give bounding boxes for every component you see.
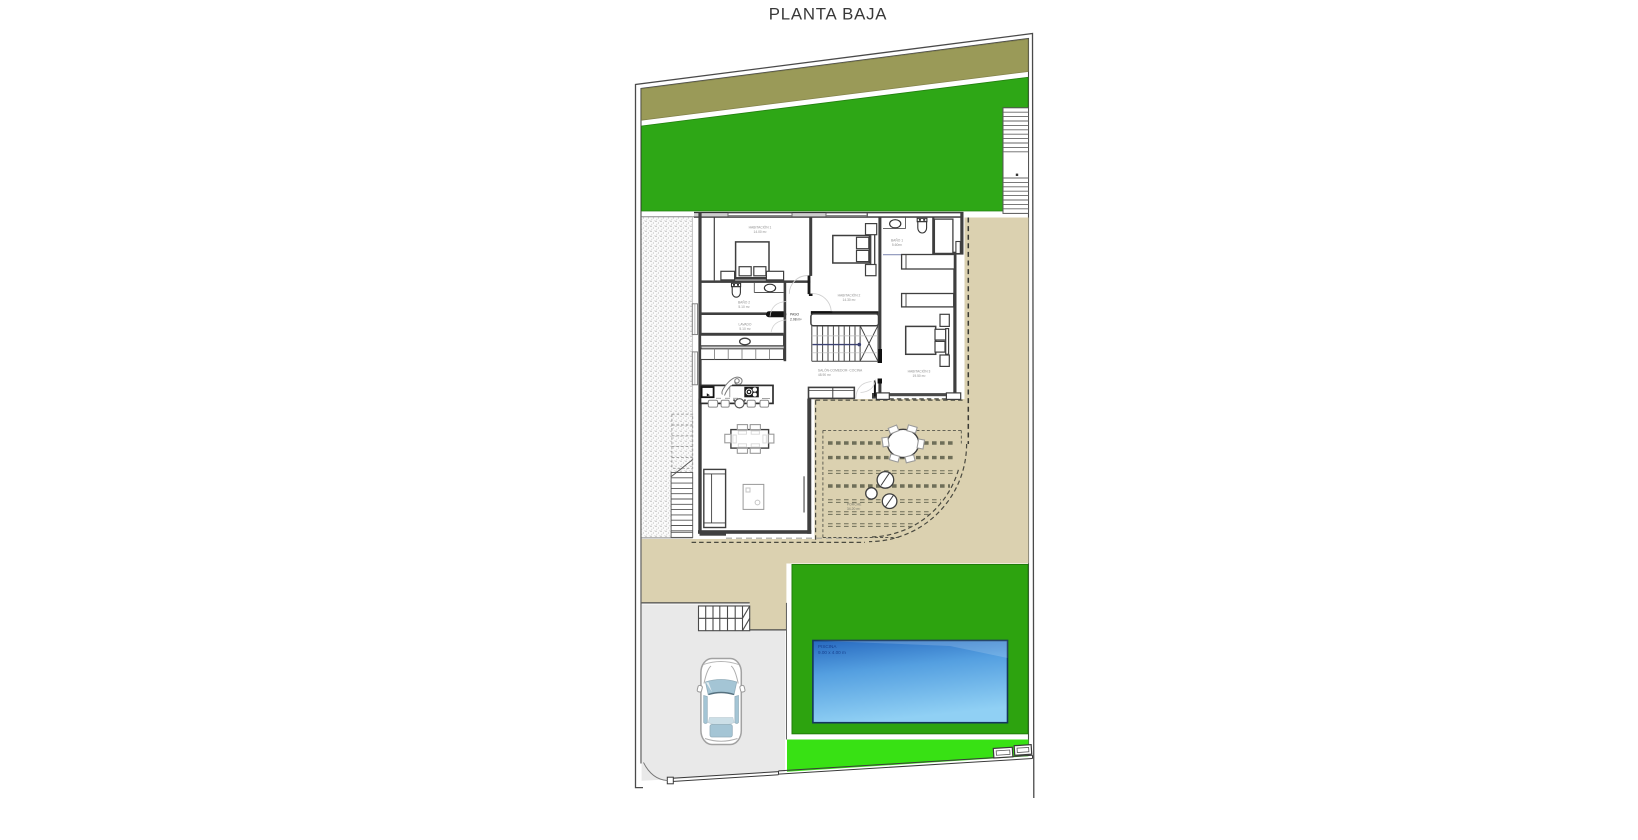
svg-text:PORCHE: PORCHE	[847, 503, 862, 507]
svg-text:PLANTA BAJA: PLANTA BAJA	[769, 5, 888, 24]
svg-text:LAVADO: LAVADO	[739, 323, 752, 327]
svg-text:2.08 m²: 2.08 m²	[790, 318, 802, 322]
svg-text:5.60m²: 5.60m²	[892, 243, 903, 247]
svg-text:48.90 m²: 48.90 m²	[818, 373, 832, 377]
svg-text:5.10 m²: 5.10 m²	[739, 327, 751, 331]
svg-text:PASO: PASO	[790, 313, 800, 317]
svg-text:19.50 m²: 19.50 m²	[912, 374, 926, 378]
svg-text:HABITACIÓN 1: HABITACIÓN 1	[749, 225, 772, 230]
svg-text:14.30 m²: 14.30 m²	[842, 298, 856, 302]
svg-text:HABITACIÓN 2: HABITACIÓN 2	[838, 293, 861, 298]
svg-text:BAÑO 1: BAÑO 1	[891, 238, 903, 243]
svg-text:34.20 m²: 34.20 m²	[847, 507, 861, 511]
svg-text:PISCINA: PISCINA	[818, 644, 837, 649]
svg-text:BAÑO 2: BAÑO 2	[738, 300, 750, 305]
svg-text:14.00 m²: 14.00 m²	[753, 230, 767, 234]
svg-text:9.00 x 4.00 m: 9.00 x 4.00 m	[818, 650, 846, 655]
svg-text:5.10 m²: 5.10 m²	[738, 305, 750, 309]
svg-text:HABITACIÓN 3: HABITACIÓN 3	[908, 369, 931, 374]
svg-text:SALÓN-COMEDOR- COCINA: SALÓN-COMEDOR- COCINA	[818, 368, 863, 373]
